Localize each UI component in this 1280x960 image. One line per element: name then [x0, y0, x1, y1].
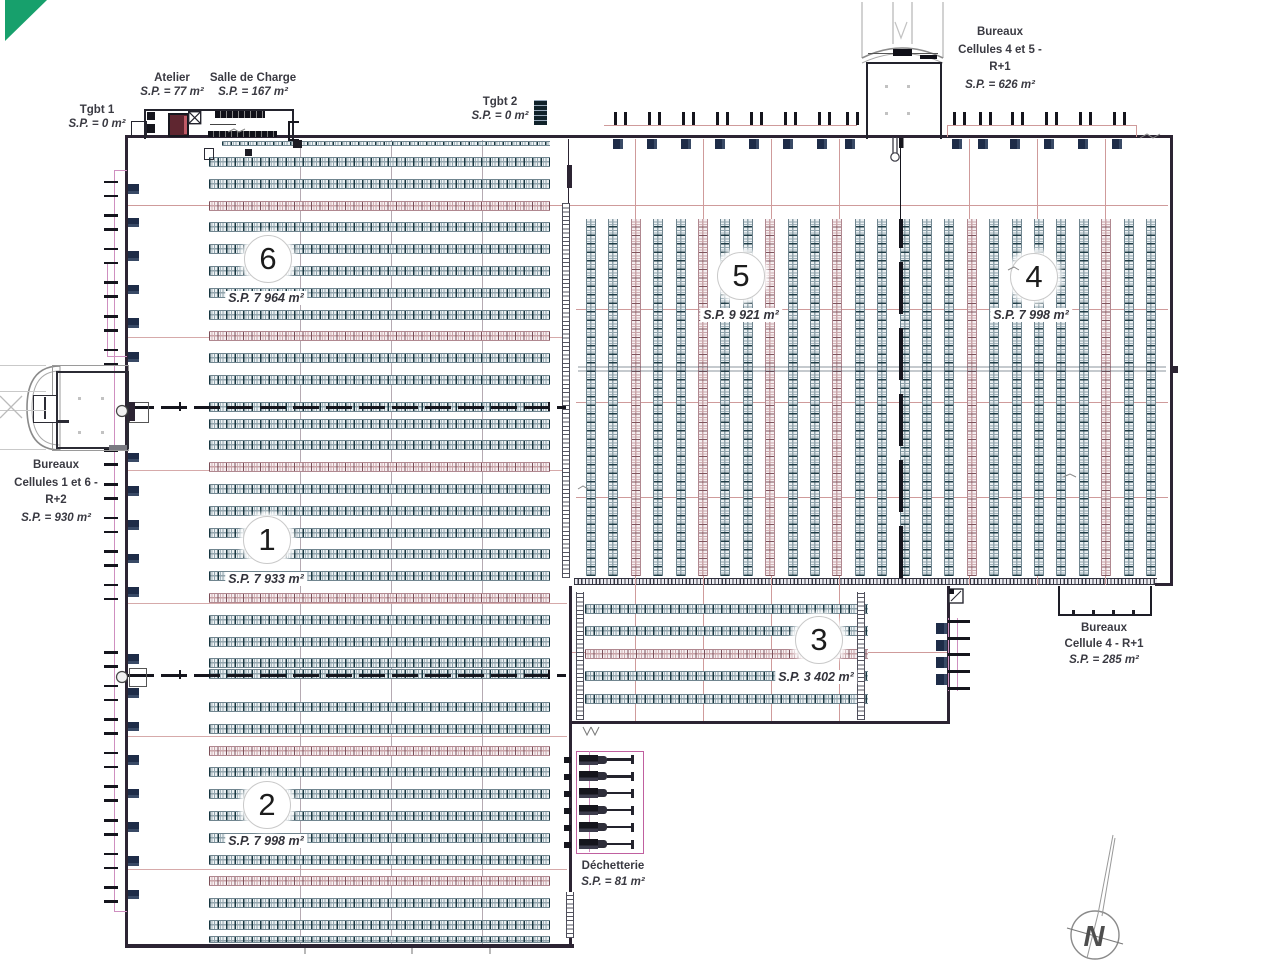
svg-text:N: N: [1084, 921, 1106, 953]
